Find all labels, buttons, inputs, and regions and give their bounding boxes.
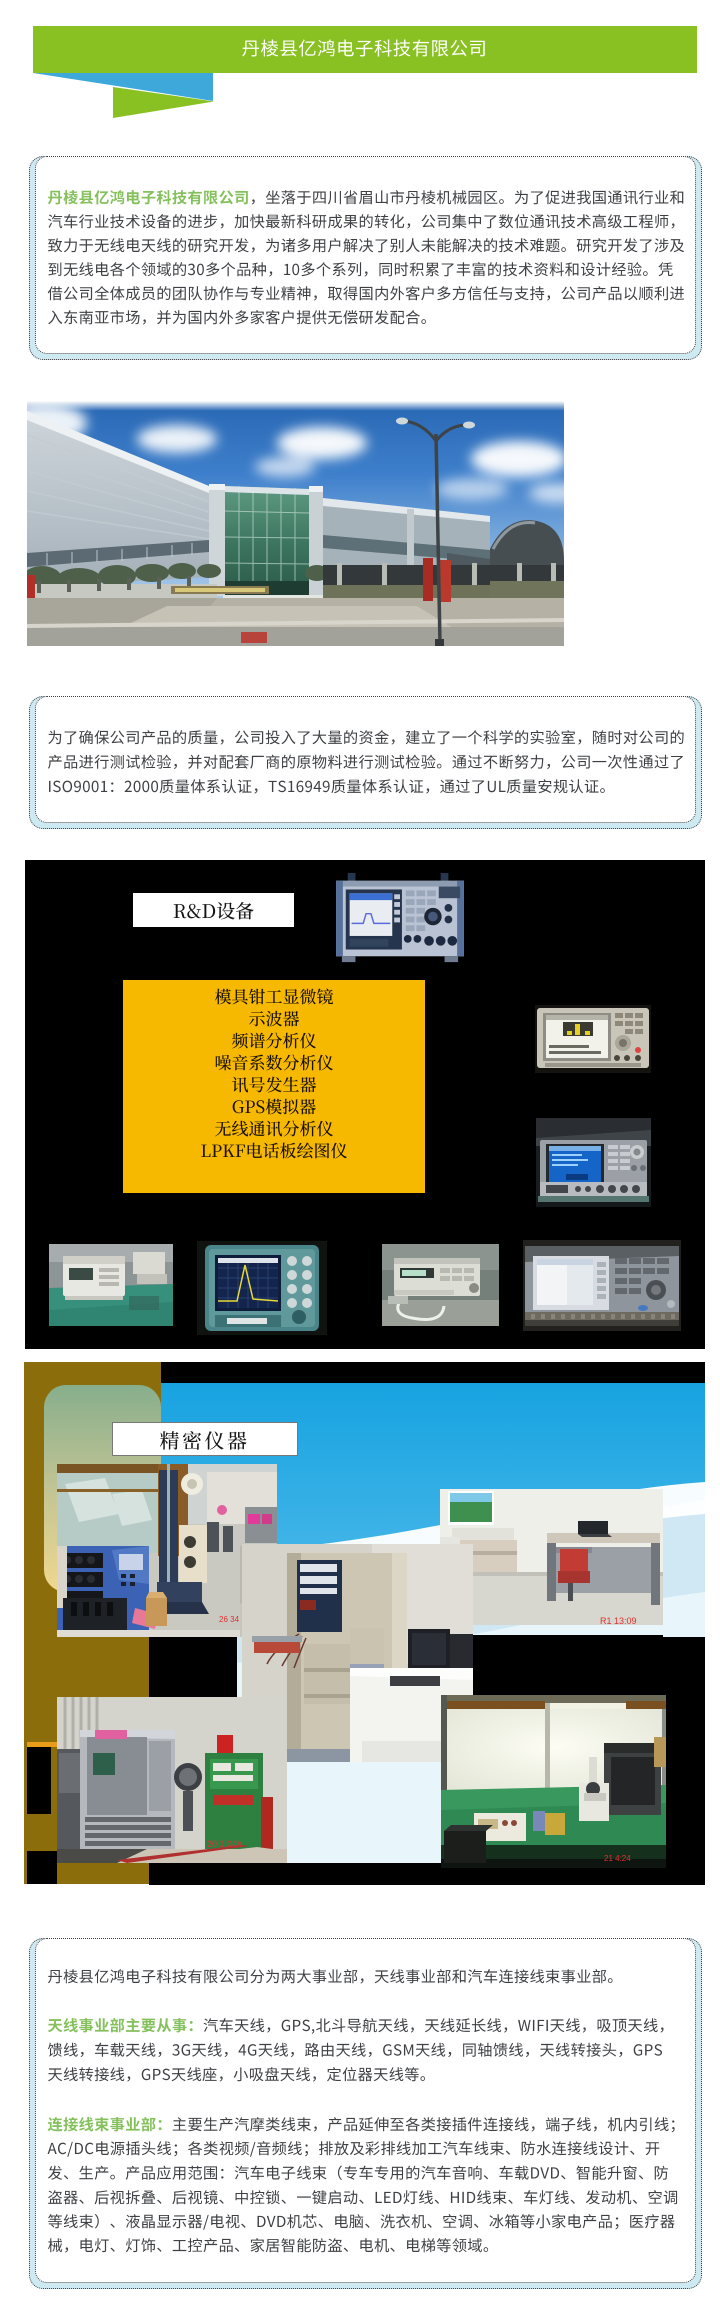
svg-text:20 1:04h: 20 1:04h — [207, 1839, 242, 1849]
svg-text:26 34: 26 34 — [219, 1615, 240, 1624]
svg-text:R1 13:09: R1 13:09 — [600, 1616, 637, 1625]
svg-text:21 4:24: 21 4:24 — [604, 1854, 631, 1863]
